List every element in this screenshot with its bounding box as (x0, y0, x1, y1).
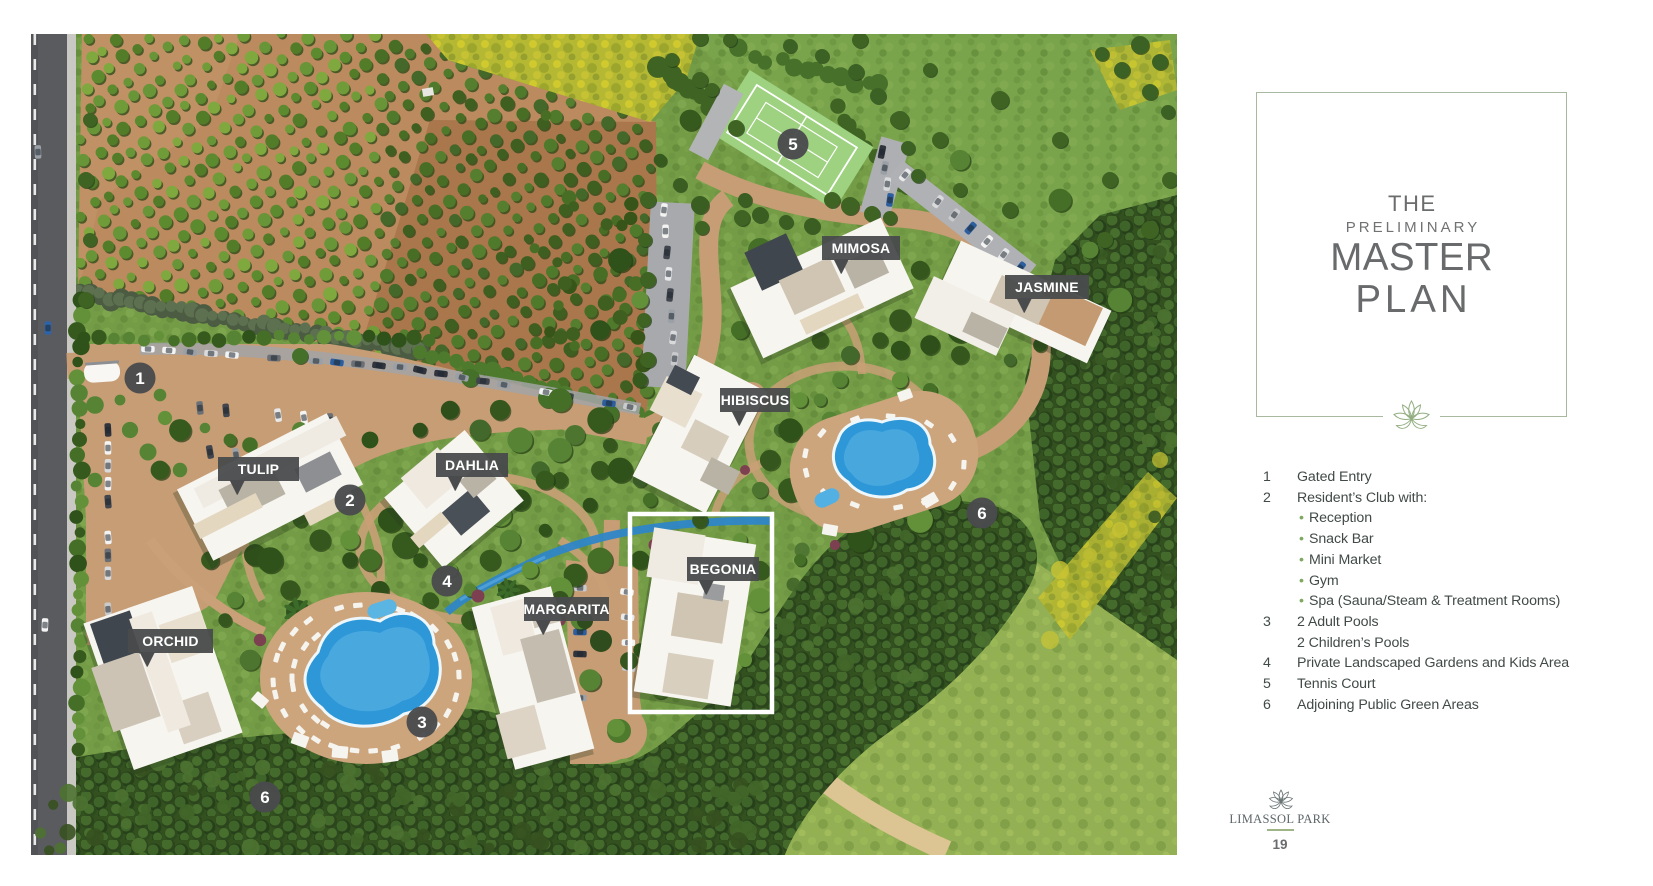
svg-text:1: 1 (135, 369, 144, 388)
svg-text:BEGONIA: BEGONIA (690, 561, 757, 577)
svg-text:2: 2 (345, 491, 354, 510)
svg-text:HIBISCUS: HIBISCUS (721, 392, 790, 408)
svg-text:5: 5 (788, 135, 797, 154)
svg-text:4: 4 (442, 572, 452, 591)
svg-text:6: 6 (977, 504, 986, 523)
svg-text:MIMOSA: MIMOSA (832, 240, 891, 256)
svg-text:JASMINE: JASMINE (1015, 279, 1079, 295)
svg-text:MARGARITA: MARGARITA (523, 601, 609, 617)
svg-text:ORCHID: ORCHID (142, 633, 198, 649)
svg-text:DAHLIA: DAHLIA (445, 457, 499, 473)
svg-text:3: 3 (417, 713, 426, 732)
svg-text:6: 6 (260, 788, 269, 807)
svg-text:TULIP: TULIP (238, 461, 279, 477)
